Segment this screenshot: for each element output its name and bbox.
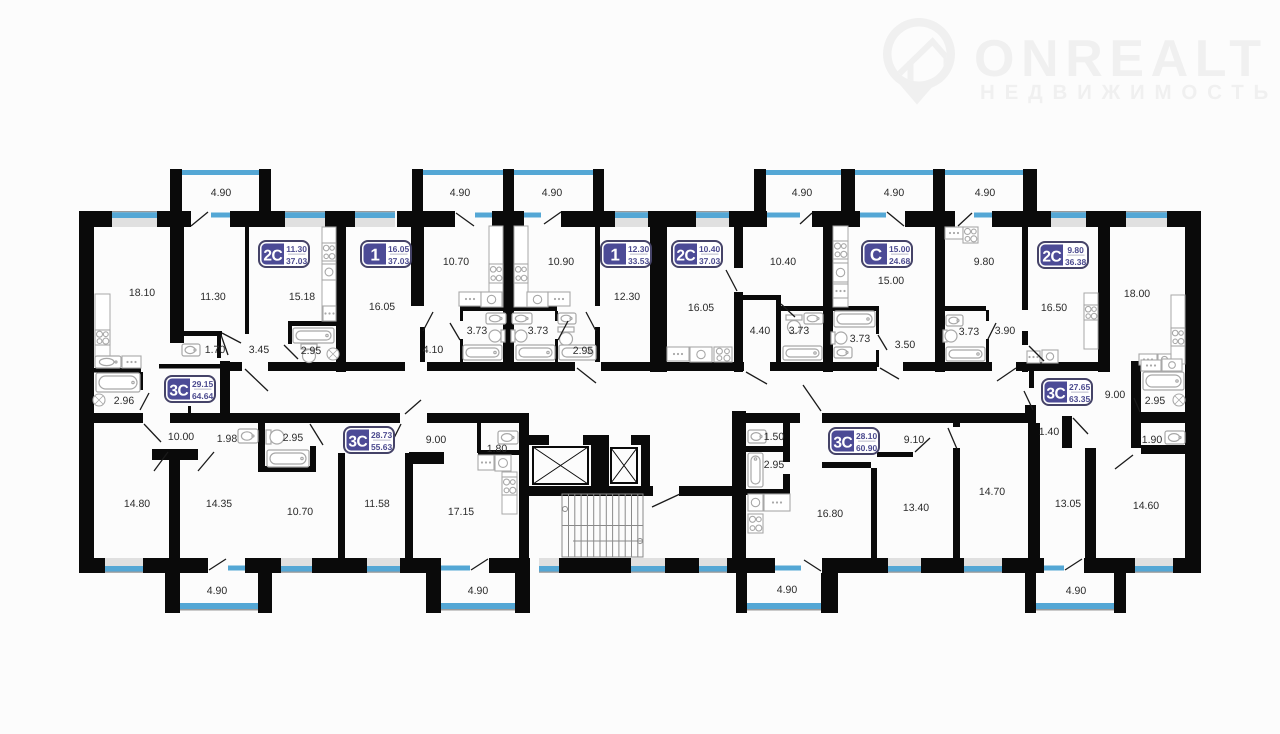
svg-text:3.90: 3.90: [995, 325, 1016, 337]
svg-text:12.30: 12.30: [628, 244, 650, 254]
svg-text:4.90: 4.90: [777, 584, 798, 596]
svg-text:60.90: 60.90: [856, 443, 878, 453]
svg-text:16.05: 16.05: [388, 244, 410, 254]
svg-text:3.50: 3.50: [895, 339, 916, 351]
svg-text:1.70: 1.70: [205, 344, 226, 356]
svg-text:3.73: 3.73: [528, 325, 549, 337]
svg-text:13.40: 13.40: [903, 502, 929, 514]
svg-text:55.63: 55.63: [371, 442, 393, 452]
svg-text:1.40: 1.40: [1039, 426, 1060, 438]
svg-text:1.90: 1.90: [1142, 434, 1163, 446]
svg-text:4.90: 4.90: [207, 585, 228, 597]
svg-text:27.65: 27.65: [1069, 382, 1091, 392]
svg-text:33.53: 33.53: [628, 256, 650, 266]
svg-text:4.90: 4.90: [792, 187, 813, 199]
svg-text:1: 1: [370, 245, 379, 264]
svg-text:10.90: 10.90: [548, 256, 574, 268]
svg-text:НЕДВИЖИМОСТЬ: НЕДВИЖИМОСТЬ: [980, 81, 1278, 104]
svg-text:14.60: 14.60: [1133, 500, 1159, 512]
svg-text:63.35: 63.35: [1069, 394, 1091, 404]
svg-text:1.50: 1.50: [764, 431, 785, 443]
svg-text:12.30: 12.30: [614, 291, 640, 303]
svg-text:2.95: 2.95: [573, 345, 594, 357]
svg-text:18.00: 18.00: [1124, 288, 1150, 300]
svg-text:4.90: 4.90: [211, 187, 232, 199]
svg-text:14.35: 14.35: [206, 498, 232, 510]
svg-text:15.00: 15.00: [889, 244, 911, 254]
svg-text:17.15: 17.15: [448, 506, 474, 518]
svg-text:2.95: 2.95: [764, 459, 785, 471]
svg-text:10.00: 10.00: [168, 431, 194, 443]
svg-text:15.00: 15.00: [878, 275, 904, 287]
svg-text:1.98: 1.98: [217, 433, 238, 445]
svg-text:29.15: 29.15: [192, 379, 214, 389]
svg-text:9.80: 9.80: [1067, 245, 1084, 255]
svg-text:14.70: 14.70: [979, 486, 1005, 498]
svg-text:2.96: 2.96: [114, 395, 135, 407]
svg-text:2.95: 2.95: [1145, 395, 1166, 407]
svg-text:16.80: 16.80: [817, 508, 843, 520]
svg-text:16.50: 16.50: [1041, 302, 1067, 314]
svg-text:9.00: 9.00: [1105, 389, 1126, 401]
svg-text:36.38: 36.38: [1065, 257, 1087, 267]
svg-text:28.10: 28.10: [856, 431, 878, 441]
svg-text:10.70: 10.70: [443, 256, 469, 268]
svg-text:16.05: 16.05: [688, 302, 714, 314]
svg-text:24.68: 24.68: [889, 256, 911, 266]
svg-text:3.73: 3.73: [959, 326, 980, 338]
svg-text:3C: 3C: [833, 434, 852, 451]
svg-text:4.90: 4.90: [450, 187, 471, 199]
svg-text:3C: 3C: [348, 433, 367, 450]
svg-text:3.45: 3.45: [249, 344, 270, 356]
svg-text:64.64: 64.64: [192, 391, 214, 401]
svg-text:11.30: 11.30: [286, 244, 307, 254]
svg-text:11.58: 11.58: [364, 498, 390, 510]
svg-text:3.73: 3.73: [789, 325, 810, 337]
svg-text:3.73: 3.73: [467, 325, 488, 337]
svg-text:14.80: 14.80: [124, 498, 150, 510]
svg-text:11.30: 11.30: [200, 291, 226, 303]
svg-text:37.03: 37.03: [388, 256, 410, 266]
svg-text:18.10: 18.10: [129, 287, 155, 299]
svg-text:3.73: 3.73: [850, 333, 871, 345]
svg-text:3C: 3C: [1046, 385, 1065, 402]
svg-text:2C: 2C: [676, 247, 695, 264]
svg-text:2C: 2C: [263, 247, 282, 264]
svg-text:C: C: [870, 245, 882, 264]
svg-text:28.73: 28.73: [371, 430, 393, 440]
svg-text:13.05: 13.05: [1055, 498, 1081, 510]
svg-text:2C: 2C: [1042, 248, 1061, 265]
svg-text:2.95: 2.95: [283, 432, 304, 444]
svg-text:3C: 3C: [169, 382, 188, 399]
svg-text:15.18: 15.18: [289, 291, 315, 303]
svg-text:10.40: 10.40: [699, 244, 721, 254]
svg-text:4.10: 4.10: [423, 344, 444, 356]
svg-text:10.40: 10.40: [770, 256, 796, 268]
svg-text:10.70: 10.70: [287, 506, 313, 518]
svg-text:4.90: 4.90: [468, 585, 489, 597]
svg-text:ONREALT: ONREALT: [974, 30, 1268, 88]
svg-text:1.80: 1.80: [487, 443, 508, 455]
svg-text:4.90: 4.90: [1066, 585, 1087, 597]
svg-text:4.40: 4.40: [750, 325, 771, 337]
svg-text:4.90: 4.90: [542, 187, 563, 199]
svg-text:2.95: 2.95: [301, 345, 322, 357]
svg-text:16.05: 16.05: [369, 301, 395, 313]
svg-text:4.90: 4.90: [975, 187, 996, 199]
svg-text:37.03: 37.03: [286, 256, 308, 266]
svg-text:37.03: 37.03: [699, 256, 721, 266]
svg-text:9.10: 9.10: [904, 434, 925, 446]
svg-text:4.90: 4.90: [884, 187, 905, 199]
svg-text:9.00: 9.00: [426, 434, 447, 446]
svg-text:1: 1: [610, 245, 619, 264]
svg-text:9.80: 9.80: [974, 256, 995, 268]
